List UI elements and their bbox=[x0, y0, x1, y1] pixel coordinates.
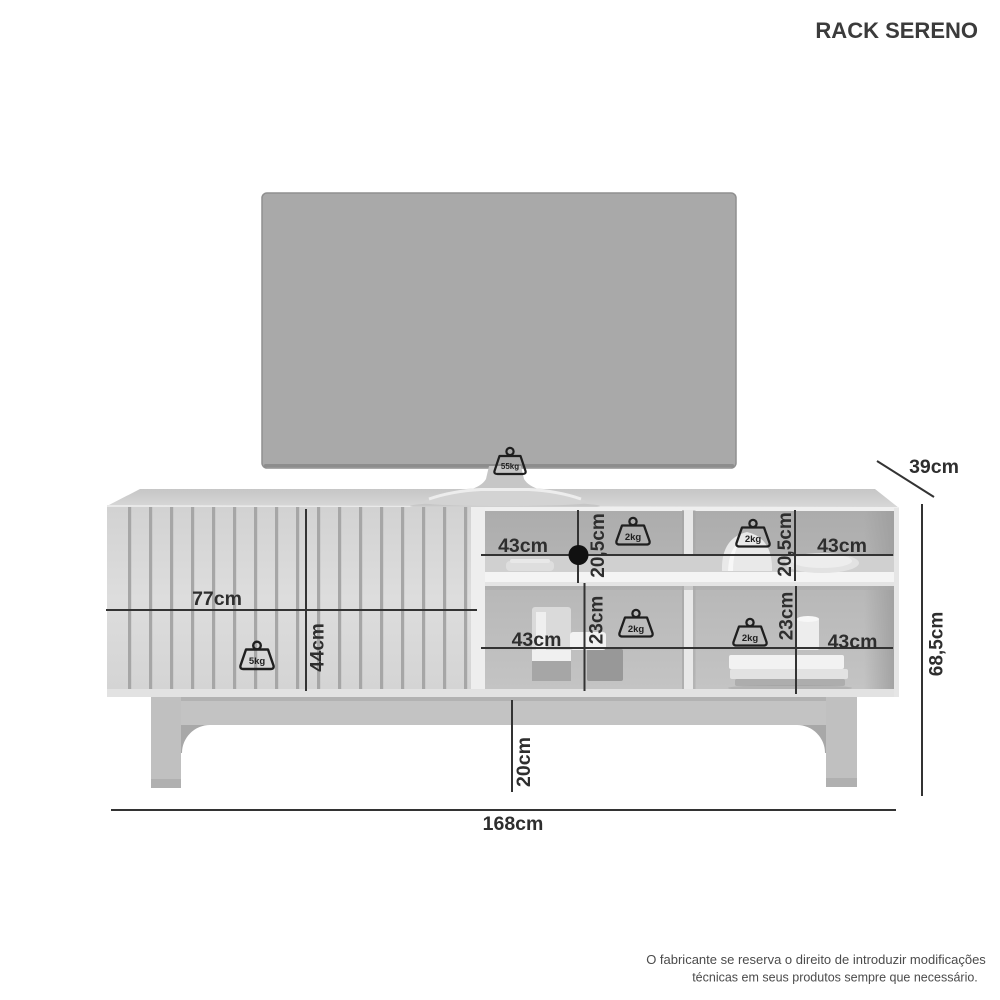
svg-text:43cm: 43cm bbox=[828, 631, 878, 653]
svg-text:20cm: 20cm bbox=[513, 737, 535, 787]
svg-text:43cm: 43cm bbox=[817, 535, 867, 557]
svg-text:O fabricante se reserva o dire: O fabricante se reserva o direito de int… bbox=[646, 952, 986, 967]
svg-text:20,5cm: 20,5cm bbox=[775, 512, 796, 576]
svg-text:39cm: 39cm bbox=[909, 456, 959, 478]
svg-text:técnicas em seus produtos semp: técnicas em seus produtos sempre que nec… bbox=[692, 971, 978, 985]
svg-text:43cm: 43cm bbox=[512, 629, 562, 651]
svg-text:77cm: 77cm bbox=[192, 588, 242, 610]
svg-text:43cm: 43cm bbox=[498, 535, 548, 557]
svg-text:2kg: 2kg bbox=[628, 624, 645, 635]
svg-text:44cm: 44cm bbox=[308, 623, 329, 672]
svg-text:RACK SERENO: RACK SERENO bbox=[815, 18, 978, 43]
svg-text:23cm: 23cm bbox=[587, 596, 608, 645]
svg-text:68,5cm: 68,5cm bbox=[927, 612, 948, 676]
svg-text:2kg: 2kg bbox=[742, 633, 759, 644]
svg-text:168cm: 168cm bbox=[483, 813, 544, 835]
svg-text:20,5cm: 20,5cm bbox=[588, 513, 609, 577]
svg-text:55kg: 55kg bbox=[501, 462, 519, 471]
svg-text:5kg: 5kg bbox=[249, 656, 266, 667]
svg-text:2kg: 2kg bbox=[745, 534, 762, 545]
svg-text:23cm: 23cm bbox=[777, 592, 798, 641]
svg-text:2kg: 2kg bbox=[625, 532, 642, 543]
